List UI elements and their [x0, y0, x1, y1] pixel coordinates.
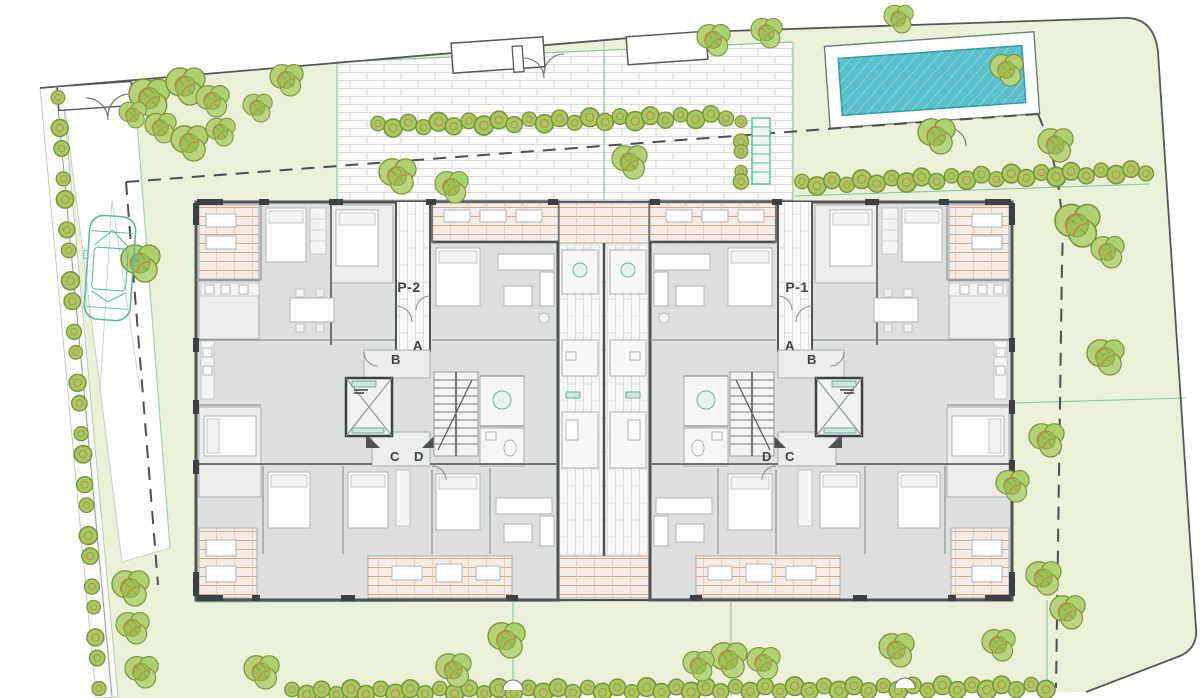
hedge-bubble-icon: [929, 173, 945, 189]
hedge-bubble-icon: [84, 579, 99, 594]
hedge-bubble-icon: [59, 222, 75, 238]
entrance-label-unit-b-right: B: [807, 352, 817, 367]
hedge-bubble-icon: [795, 174, 809, 188]
site-plan-drawing: P-2P-1ABCDABDC: [0, 0, 1200, 698]
hedge-bubble-icon: [973, 166, 989, 182]
hedge-bubble-icon: [82, 548, 98, 564]
hedge-bubble-icon: [757, 678, 773, 694]
hedge-bubble-icon: [1037, 680, 1055, 698]
hedge-bubble-icon: [64, 293, 80, 309]
hedge-bubble-icon: [913, 168, 931, 186]
hedge-bubble-icon: [51, 120, 68, 137]
hedge-bubble-icon: [673, 108, 687, 122]
hedge-bubble-icon: [54, 141, 70, 157]
hedge-bubble-icon: [609, 679, 625, 695]
hedge-bubble-icon: [371, 116, 385, 130]
hedge-bubble-icon: [718, 111, 733, 126]
hedge-bubble-icon: [56, 191, 73, 208]
hedge-bubble-icon: [801, 683, 818, 698]
hedge-bubble-icon: [69, 346, 83, 360]
hedge-bubble-icon: [87, 629, 104, 646]
entrance-label-unit-d-left: D: [414, 449, 424, 464]
hedge-bubble-icon: [72, 395, 88, 411]
entrance-label-unit-c-left: C: [390, 449, 400, 464]
hedge-bubble-icon: [66, 324, 81, 339]
hedge-bubble-icon: [642, 107, 660, 125]
hedge-bubble-icon: [658, 112, 674, 128]
hedge-bubble-icon: [1018, 170, 1035, 187]
hedge-bubble-icon: [1094, 163, 1108, 177]
hedge-bubble-icon: [417, 686, 433, 698]
hedge-bubble-icon: [61, 243, 76, 258]
entrance-label-portal-2: P-2: [397, 279, 420, 295]
hedge-bubble-icon: [845, 677, 863, 695]
hedge-bubble-icon: [993, 676, 1011, 694]
hedge-bubble-icon: [1062, 163, 1080, 181]
hedge-bubble-icon: [74, 427, 88, 441]
hedge-bubble-icon: [549, 679, 567, 697]
hedge-bubble-icon: [87, 600, 101, 614]
entrance-label-unit-d-right: D: [762, 449, 772, 464]
hedge-bubble-icon: [79, 527, 97, 545]
hedge-bubble-icon: [56, 172, 70, 186]
entrance-label-unit-a-left: A: [413, 338, 423, 353]
hedge-bubble-icon: [490, 111, 508, 129]
hedge-bubble-icon: [949, 682, 966, 698]
hedge-bubble-icon: [653, 684, 670, 698]
hedge-bubble-icon: [92, 681, 106, 695]
hedge-bubble-icon: [551, 110, 567, 126]
hedge-bubble-icon: [703, 106, 719, 122]
hedge-bubble-icon: [522, 112, 536, 126]
hedge-bubble-icon: [445, 118, 462, 135]
hedge-bubble-icon: [51, 91, 65, 105]
site-plan-canvas: P-2P-1ABCDABDC: [0, 0, 1200, 698]
hedge-bubble-icon: [1138, 166, 1153, 181]
hedge-bubble-icon: [69, 374, 86, 391]
hedge-bubble-icon: [402, 680, 420, 698]
hedge-bubble-icon: [77, 477, 93, 493]
entrance-label-unit-c-right: C: [785, 449, 795, 464]
hedge-bubble-icon: [62, 272, 80, 290]
hedge-bubble-icon: [734, 145, 748, 159]
hedge-bubble-icon: [74, 445, 91, 462]
hedge-bubble-icon: [313, 681, 329, 697]
hedge-bubble-icon: [1123, 161, 1139, 177]
hedge-bubble-icon: [944, 169, 958, 183]
hedge-bubble-icon: [1008, 682, 1024, 698]
hedge-bubble-icon: [400, 114, 416, 130]
garden-stair-icon: [752, 118, 770, 184]
hedge-bubble-icon: [713, 684, 729, 698]
hedge-bubble-icon: [1078, 168, 1094, 184]
entrance-label-unit-a-right: A: [785, 338, 795, 353]
hedge-bubble-icon: [861, 683, 877, 698]
building: [193, 199, 1015, 601]
hedge-bubble-icon: [735, 116, 747, 128]
hedge-bubble-icon: [506, 117, 522, 133]
entrance-label-unit-b-left: B: [391, 352, 401, 367]
hedge-bubble-icon: [824, 172, 840, 188]
hedge-bubble-icon: [565, 685, 581, 698]
hedge-bubble-icon: [597, 114, 614, 131]
hedge-bubble-icon: [79, 498, 94, 513]
hedge-bubble-icon: [733, 174, 748, 189]
hedge-bubble-icon: [868, 175, 885, 192]
entrance-label-portal-1: P-1: [785, 279, 808, 295]
hedge-bubble-icon: [89, 650, 105, 666]
hedge-bubble-icon: [357, 686, 374, 698]
